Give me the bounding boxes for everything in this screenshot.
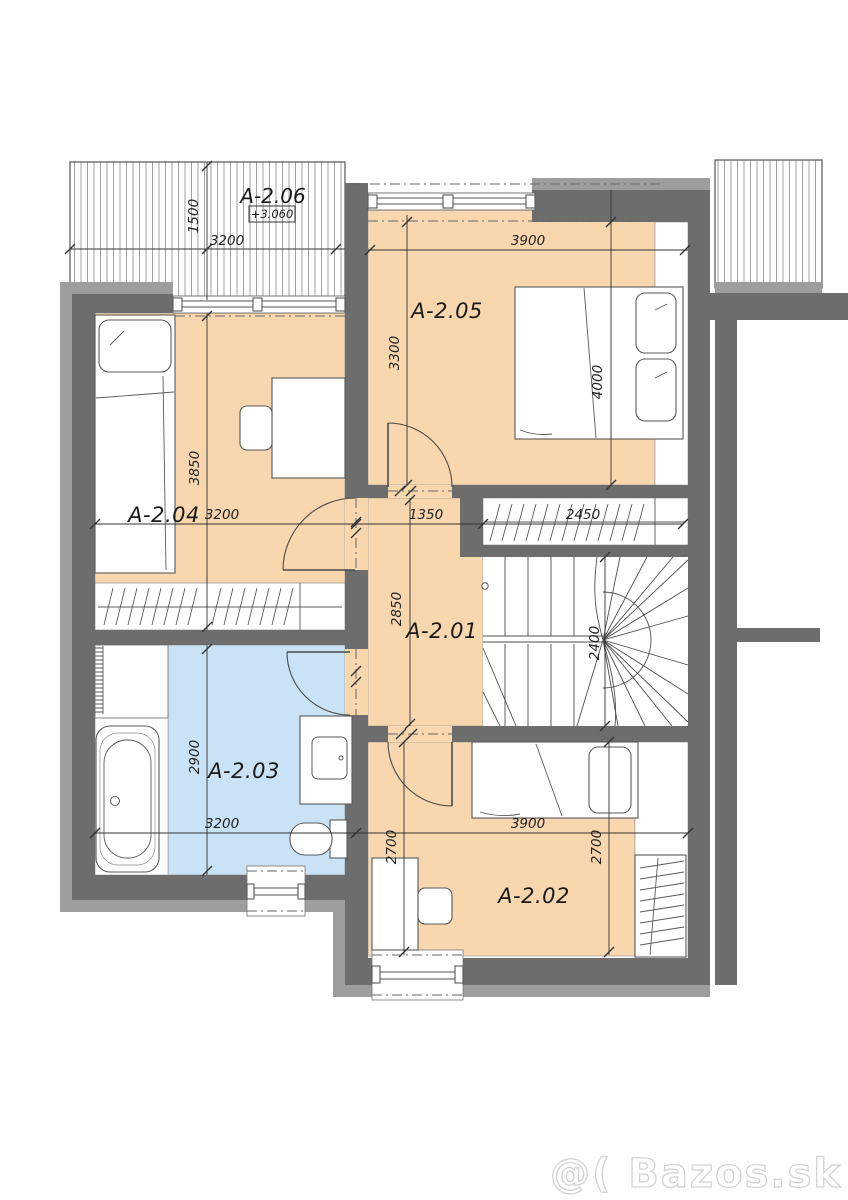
- dim-a204-width: 3200: [205, 507, 239, 523]
- label-a202: A-2.02: [496, 884, 570, 908]
- dim-a204-depth: 3850: [187, 451, 203, 485]
- window-a202: [372, 950, 463, 1000]
- towel-radiator-icon: [95, 646, 103, 714]
- dim-balcony-depth: 1500: [186, 199, 202, 233]
- neighbor-party-wall: [715, 320, 737, 985]
- neighbor-top-wall: [710, 293, 848, 320]
- dim-a202-depth-left: 2700: [384, 830, 400, 864]
- neighbor-wall-stub: [737, 628, 820, 642]
- dim-balcony-width: 3200: [210, 233, 244, 249]
- bed-a202: [472, 742, 638, 818]
- toilet: [290, 820, 347, 858]
- stairwell-floor: [483, 557, 688, 726]
- dim-closet-width: 2450: [566, 507, 600, 523]
- dim-hall-width: 1350: [409, 507, 443, 523]
- label-a205: A-2.05: [409, 299, 483, 323]
- stair-newel: [482, 583, 488, 589]
- dim-a205-width: 3900: [511, 233, 545, 249]
- dim-stair-run: 2400: [587, 626, 603, 660]
- dim-a202-width: 3900: [511, 816, 545, 832]
- dim-a205-depth: 3300: [387, 336, 403, 370]
- balcony-neighbor: [715, 160, 822, 288]
- bathtub: [96, 726, 159, 872]
- balcony-a206: [70, 162, 345, 300]
- label-a204: A-2.04: [126, 503, 200, 527]
- shower-counter: [95, 645, 168, 718]
- window-bathroom: [247, 866, 305, 916]
- bed-a205: [515, 287, 683, 439]
- balcony-doors-a204: [173, 296, 345, 313]
- wardrobe-a202: [635, 855, 686, 957]
- label-a201: A-2.01: [404, 619, 478, 643]
- washbasin: [300, 716, 352, 804]
- label-a203: A-2.03: [206, 759, 280, 783]
- label-level: +3.060: [251, 207, 294, 221]
- floor-plan-page: 3200 1500 3900 3300 4000 3200 3850 1350 …: [0, 0, 848, 1200]
- bed-a204: [95, 315, 175, 573]
- floor-plan-drawing: 3200 1500 3900 3300 4000 3200 3850 1350 …: [0, 0, 848, 1200]
- window-a205-top: [368, 193, 535, 210]
- watermark: @( Bazos.sk: [550, 1151, 842, 1197]
- label-a206: A-2.06: [238, 184, 305, 208]
- dim-bath-width: 3200: [205, 816, 239, 832]
- dim-a202-depth-right: 2700: [589, 830, 605, 864]
- dim-a205-length: 4000: [590, 365, 606, 399]
- dim-bath-depth: 2900: [187, 740, 203, 774]
- dim-hall-depth: 2850: [389, 592, 405, 626]
